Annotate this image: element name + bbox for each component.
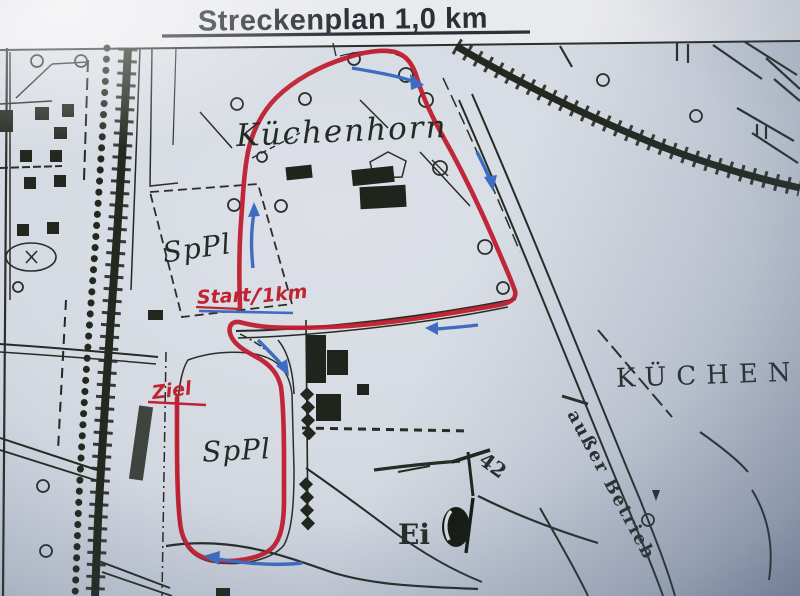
grandstand-bar bbox=[129, 405, 153, 480]
tree-circle bbox=[299, 93, 311, 105]
tree-circle bbox=[690, 110, 702, 122]
tree-circle bbox=[478, 240, 492, 254]
small-enclosure bbox=[6, 243, 56, 271]
railway-marker-triangle bbox=[652, 490, 660, 501]
tree-circle bbox=[231, 98, 243, 110]
direction-arrow-icon bbox=[477, 152, 497, 191]
finish-annotation: Ziel bbox=[148, 377, 206, 405]
direction-arrow-icon bbox=[425, 322, 478, 335]
area-label: Küchenhorn bbox=[234, 109, 448, 154]
egg-label: Ei bbox=[398, 518, 430, 551]
finish-underline bbox=[148, 402, 206, 405]
tree-circle bbox=[37, 480, 49, 492]
tree-circle bbox=[597, 74, 609, 86]
start-annotation: Start 1km bbox=[196, 281, 309, 309]
district-label: KÜCHEN bbox=[615, 355, 800, 393]
start-underline bbox=[196, 307, 240, 309]
egg-monument-symbol bbox=[442, 498, 473, 553]
lower-field-label: SpPl bbox=[201, 432, 272, 469]
tree-circle bbox=[75, 55, 87, 67]
tree-circle bbox=[497, 282, 509, 294]
map-canvas: Streckenplan 1,0 km bbox=[0, 0, 800, 596]
top-right-railway-embankment bbox=[456, 46, 800, 188]
central-buildings bbox=[306, 335, 369, 421]
streckenplan-photo: Streckenplan 1,0 km bbox=[0, 0, 800, 596]
distance-label: 1km bbox=[261, 281, 309, 308]
start-label: Start bbox=[196, 284, 252, 309]
tree-circle bbox=[40, 545, 52, 557]
tree-circle bbox=[228, 199, 240, 211]
tree-circle bbox=[275, 200, 287, 212]
finish-label: Ziel bbox=[150, 377, 194, 404]
left-railway-embankment bbox=[58, 48, 140, 596]
tree-circle bbox=[31, 55, 43, 67]
tree-circle bbox=[13, 282, 23, 292]
direction-arrow-icon bbox=[248, 202, 260, 268]
upper-field-label: SpPl bbox=[161, 227, 234, 269]
kuechenhorn-buildings bbox=[285, 152, 406, 209]
